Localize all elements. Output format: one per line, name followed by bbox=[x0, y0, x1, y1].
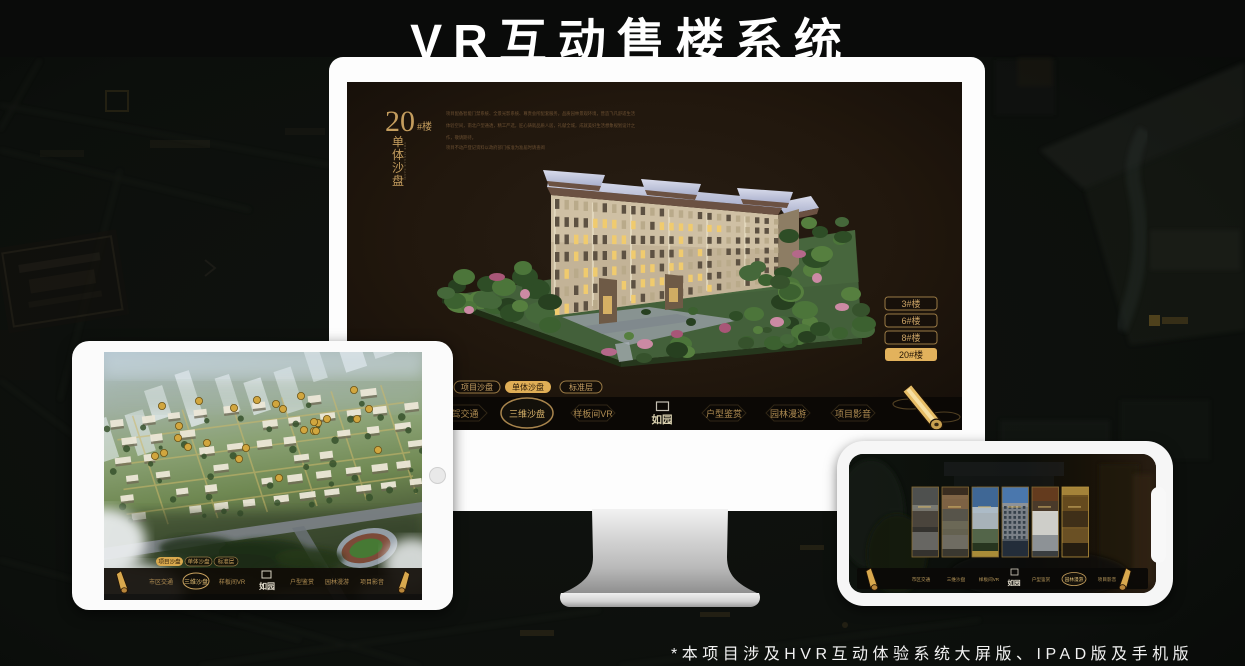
svg-text:如园: 如园 bbox=[1008, 578, 1022, 587]
svg-text:户型鉴赏: 户型鉴赏 bbox=[706, 408, 742, 419]
svg-text:20#楼: 20#楼 bbox=[899, 349, 923, 360]
svg-text:三维沙盘: 三维沙盘 bbox=[947, 576, 966, 583]
svg-text:样板间VR: 样板间VR bbox=[219, 578, 246, 586]
svg-text:项目影音: 项目影音 bbox=[835, 408, 871, 419]
svg-text:三维沙盘: 三维沙盘 bbox=[509, 408, 545, 419]
svg-text:三维沙盘: 三维沙盘 bbox=[184, 578, 208, 586]
svg-text:项目影音: 项目影音 bbox=[1098, 576, 1117, 583]
svg-text:标准层: 标准层 bbox=[218, 558, 235, 566]
svg-text:单体沙盘: 单体沙盘 bbox=[512, 382, 544, 392]
svg-text:3#楼: 3#楼 bbox=[901, 298, 920, 309]
svg-text:驾交通: 驾交通 bbox=[451, 408, 478, 419]
svg-text:20: 20 bbox=[385, 105, 415, 138]
svg-text:体验空间，南北户型通透，精工严选，匠心铸就品质人居，礼献全城: 体验空间，南北户型通透，精工严选，匠心铸就品质人居，礼献全城，成就美好生活想象规… bbox=[446, 122, 636, 129]
svg-text:如园: 如园 bbox=[259, 581, 275, 591]
svg-text:6#楼: 6#楼 bbox=[901, 315, 920, 326]
svg-text:园林漫游: 园林漫游 bbox=[1065, 576, 1084, 583]
svg-text:#楼: #楼 bbox=[417, 120, 432, 133]
svg-text:园林漫游: 园林漫游 bbox=[770, 408, 806, 419]
svg-text:市区交通: 市区交通 bbox=[149, 578, 173, 586]
svg-text:园林漫游: 园林漫游 bbox=[325, 578, 349, 586]
svg-text:项目沙盘: 项目沙盘 bbox=[461, 382, 493, 392]
svg-text:THE SINGLE SAND: THE SINGLE SAND bbox=[403, 142, 407, 180]
svg-text:单体沙盘: 单体沙盘 bbox=[187, 558, 210, 566]
svg-text:标准层: 标准层 bbox=[569, 382, 593, 392]
svg-text:作，敬请期待。: 作，敬请期待。 bbox=[446, 134, 476, 141]
svg-text:样板间VR: 样板间VR bbox=[979, 576, 1000, 583]
svg-text:户型鉴赏: 户型鉴赏 bbox=[1032, 576, 1051, 583]
svg-text:项目配备智能门禁系统、全景光影系统、尊贵会所配套服务，品质园: 项目配备智能门禁系统、全景光影系统、尊贵会所配套服务，品质园林景观环境，营造飞凡… bbox=[446, 110, 636, 117]
svg-text:样板间VR: 样板间VR bbox=[573, 408, 613, 419]
svg-text:项目不动产登记资料以政府部门核准为准届时请查阅: 项目不动产登记资料以政府部门核准为准届时请查阅 bbox=[446, 144, 545, 151]
svg-text:项目沙盘: 项目沙盘 bbox=[158, 558, 181, 566]
svg-text:项目影音: 项目影音 bbox=[360, 578, 384, 586]
svg-text:市区交通: 市区交通 bbox=[912, 576, 931, 583]
svg-text:如园: 如园 bbox=[652, 413, 673, 426]
svg-text:8#楼: 8#楼 bbox=[901, 332, 920, 343]
svg-text:户型鉴赏: 户型鉴赏 bbox=[290, 578, 314, 586]
